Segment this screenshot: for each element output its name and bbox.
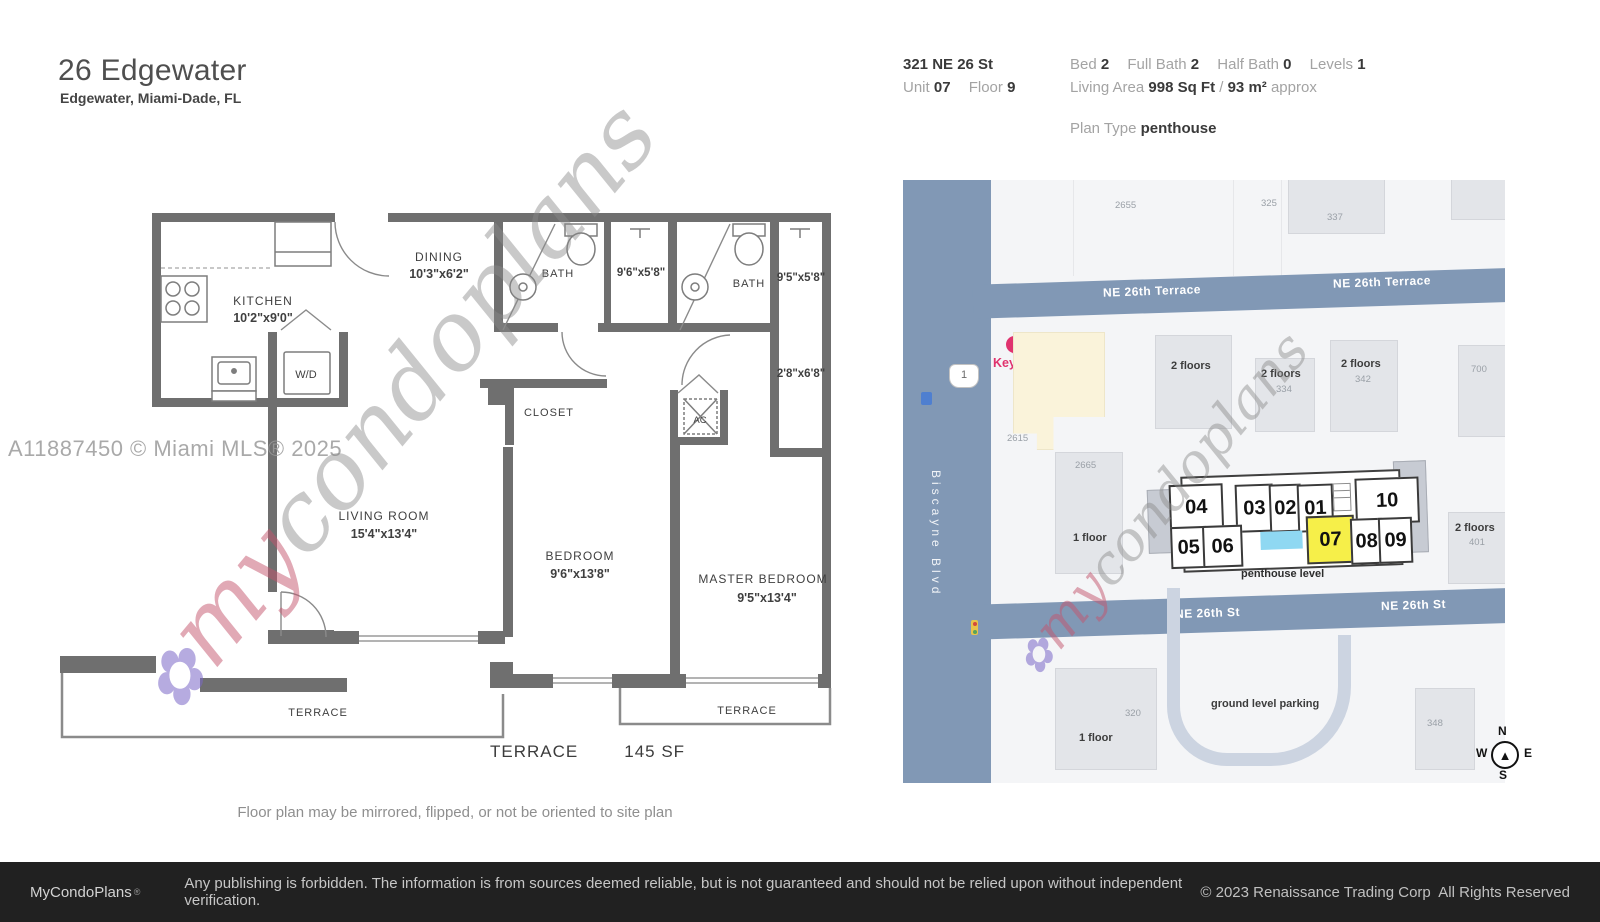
bath1-label: BATH (542, 268, 575, 280)
counter-cabinet (275, 222, 331, 266)
bldg-floors-label: 1 floor (1073, 532, 1107, 544)
bldg-floors-label: 2 floors (1455, 522, 1495, 534)
parking-label: ground level parking (1211, 698, 1319, 710)
compass-s: S (1499, 768, 1507, 782)
footer-reg-mark: ® (134, 887, 141, 897)
bldg-floors-label: 2 floors (1261, 368, 1301, 380)
unit-cell-06: 06 (1202, 525, 1243, 568)
shower2-dims: 9'5"x5'8" (777, 272, 825, 284)
orientation-note: Floor plan may be mirrored, flipped, or … (200, 804, 710, 821)
bath2-label: BATH (733, 278, 766, 290)
condo-plan-page: 26 Edgewater Edgewater, Miami-Dade, FL 3… (0, 0, 1600, 922)
unit-floor-line: Unit 07 Floor 9 (903, 79, 1015, 96)
levels-label: Levels (1310, 56, 1353, 73)
bldg-label: 325 (1261, 198, 1277, 209)
floor-plan: KITCHEN 10'2"x9'0" DINING 10'3"x6'2" BAT… (50, 205, 850, 805)
us1-shield-icon: 1 (949, 364, 979, 388)
street-label-st-2: NE 26th St (1381, 597, 1446, 613)
mls-watermark: A11887450 © Miami MLS® 2025 (8, 436, 342, 462)
footer-copyright: © 2023 Renaissance Trading Corp All Righ… (1200, 884, 1570, 901)
master-bedroom-dims: 9'5"x13'4" (737, 591, 797, 605)
unit-cell-07-highlighted: 07 (1306, 515, 1356, 565)
terrace-caption: TERRACE 145 SF (490, 742, 685, 762)
living-room-dims: 15'4"x13'4" (351, 527, 418, 541)
closet-small-dims: 2'8"x6'8" (777, 368, 825, 380)
living-area-separator: / (1219, 79, 1223, 96)
building (1451, 180, 1505, 220)
terrace-caption-label: TERRACE (490, 742, 578, 762)
bed-value: 2 (1101, 56, 1109, 73)
stairs-icon (1333, 483, 1352, 512)
bldg-label: 2615 (1007, 433, 1028, 444)
half-bath-label: Half Bath (1217, 56, 1279, 73)
transit-stop-icon (921, 392, 932, 405)
living-area-label: Living Area (1070, 79, 1144, 96)
penthouse-level-label: penthouse level (1241, 568, 1324, 580)
full-bath-label: Full Bath (1127, 56, 1186, 73)
bldg-label: 334 (1276, 384, 1292, 395)
pool (1260, 531, 1303, 550)
building (1458, 345, 1505, 437)
bldg-label: 320 (1125, 708, 1141, 719)
bldg-floors-label: 2 floors (1171, 360, 1211, 372)
compass-w: W (1476, 746, 1487, 760)
floor-label: Floor (969, 79, 1003, 96)
compass-n: N (1498, 724, 1507, 738)
page-title: 26 Edgewater (58, 54, 247, 88)
address: 321 NE 26 St (903, 56, 993, 73)
unit-cell-04: 04 (1169, 483, 1225, 531)
plan-type-line: Plan Type penthouse (1070, 120, 1216, 137)
terrace-left-label: TERRACE (288, 707, 348, 719)
footer-brand: MyCondoPlans (30, 884, 132, 901)
beds-baths-line: Bed 2 Full Bath 2 Half Bath 0 Levels 1 (1070, 56, 1366, 73)
bldg-label: 342 (1355, 374, 1371, 385)
address-line: 321 NE 26 St (903, 56, 993, 73)
footer-bar: MyCondoPlans ® Any publishing is forbidd… (0, 862, 1600, 922)
footer-disclaimer: Any publishing is forbidden. The informa… (184, 875, 1200, 909)
living-area-metric: 93 m² (1228, 79, 1267, 96)
terrace-caption-size: 145 SF (624, 742, 685, 762)
unit-label: Unit (903, 79, 930, 96)
living-area-value: 998 Sq Ft (1148, 79, 1215, 96)
shower1-dims: 9'6"x5'8" (617, 267, 665, 279)
plan-type-label: Plan Type (1070, 120, 1136, 137)
full-bath-value: 2 (1191, 56, 1199, 73)
living-room-label: LIVING ROOM (338, 509, 429, 523)
dining-dims: 10'3"x6'2" (409, 267, 469, 281)
traffic-light-icon (971, 620, 978, 635)
road-biscayne-blvd (903, 180, 991, 783)
parcel-line (1073, 180, 1074, 276)
bldg-label: 2665 (1075, 460, 1096, 471)
building-2-floors (1330, 340, 1398, 432)
building (1288, 180, 1385, 234)
bldg-label: 337 (1327, 212, 1343, 223)
building-2-floors (1155, 335, 1232, 429)
bedroom-dims: 9'6"x13'8" (550, 567, 610, 581)
windows (359, 636, 818, 683)
stove-icon (161, 276, 207, 322)
compass-e: E (1524, 746, 1532, 760)
unit-cell-09: 09 (1378, 517, 1414, 564)
bldg-label: 2655 (1115, 200, 1136, 211)
dining-label: DINING (415, 250, 463, 264)
parcel-line (1233, 180, 1234, 276)
floor-value: 9 (1007, 79, 1015, 96)
unit-value: 07 (934, 79, 951, 96)
master-bedroom-label: MASTER BEDROOM (698, 572, 827, 586)
building (1415, 688, 1475, 770)
room-labels: KITCHEN 10'2"x9'0" DINING 10'3"x6'2" BAT… (233, 250, 828, 719)
compass-rose-icon: ▲ (1491, 741, 1519, 769)
bedroom-label: BEDROOM (545, 549, 614, 563)
bed-label: Bed (1070, 56, 1097, 73)
half-bath-value: 0 (1283, 56, 1291, 73)
levels-value: 1 (1357, 56, 1365, 73)
parcel-line (1281, 180, 1282, 276)
wd-label: W/D (295, 369, 316, 381)
shower-icon (790, 229, 810, 238)
building-1-floor (1055, 668, 1157, 770)
shower-icon (630, 229, 650, 238)
site-map: NE 26th Terrace NE 26th Terrace NE 26th … (903, 180, 1505, 783)
street-label-st-1: NE 26th St (1175, 605, 1240, 621)
bldg-floors-label: 2 floors (1341, 358, 1381, 370)
living-area-approx: approx (1271, 79, 1317, 96)
street-label-biscayne: Biscayne Blvd (929, 470, 943, 730)
closet-label: CLOSET (524, 407, 574, 419)
terrace-right-label: TERRACE (717, 705, 777, 717)
plan-type-value: penthouse (1141, 120, 1217, 137)
bldg-label: 348 (1427, 718, 1443, 729)
kitchen-label: KITCHEN (233, 294, 293, 308)
ac-label: AC (693, 415, 706, 426)
living-area-line: Living Area 998 Sq Ft / 93 m² approx (1070, 79, 1317, 96)
page-subtitle: Edgewater, Miami-Dade, FL (60, 90, 241, 106)
bldg-label: 401 (1469, 537, 1485, 548)
kitchen-dims: 10'2"x9'0" (233, 311, 293, 325)
bldg-label: 700 (1471, 364, 1487, 375)
bldg-floors-label: 1 floor (1079, 732, 1113, 744)
